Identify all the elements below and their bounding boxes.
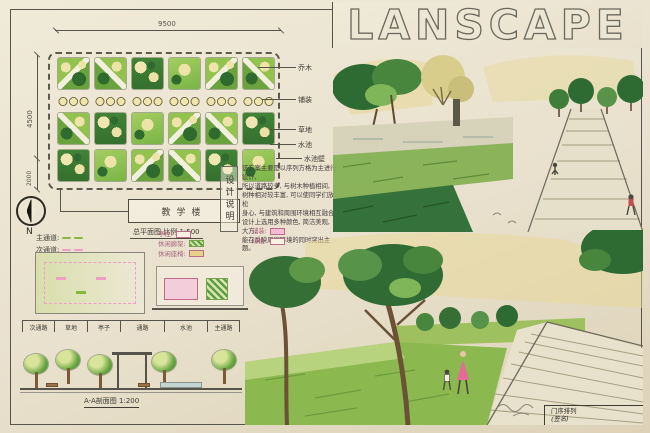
leader-line <box>258 67 296 68</box>
dimension-line-top <box>55 30 281 31</box>
planting-bed <box>206 58 237 89</box>
sculpture <box>453 99 460 126</box>
planting-bed <box>169 58 200 89</box>
legend-pergola: 休闲廊架: <box>158 240 204 250</box>
section-tree-icon <box>152 352 176 386</box>
planting-bed <box>58 150 89 181</box>
shrub-row <box>206 95 237 108</box>
section-tree-icon <box>88 355 112 389</box>
callout-pool-wall: 水池壁 <box>304 154 325 164</box>
section-ground-line <box>20 388 242 390</box>
pergola-swatch <box>189 240 204 247</box>
section-dimension-line: 次通路 草地 亭子 通路 水池 主通路 <box>22 320 240 332</box>
notes-line: 该方案主要是以序列方格为主进行设计, <box>242 165 338 183</box>
bird-marks <box>493 213 516 223</box>
shrub-row <box>58 95 89 108</box>
planting-bed <box>95 58 126 89</box>
north-arrow-icon <box>16 196 46 226</box>
presentation-board: LANSCAPE 9500 4500 2000 乔木 铺装 草地 水池 水池壁 … <box>0 0 650 433</box>
legend-pavilion-column: 亭柱: <box>158 230 204 240</box>
section-segment: 次通路 <box>22 321 54 332</box>
callout-tree: 乔木 <box>298 63 312 73</box>
main-path-swatch <box>62 237 71 240</box>
legend-structures: 亭柱: 休闲廊架: 休闲座椅: <box>158 230 204 260</box>
notes-line: 所以道路较多, 与树木种植相间, <box>242 183 338 192</box>
dim-left-label: 4500 <box>26 110 34 128</box>
north-needle <box>27 199 36 223</box>
section-bench <box>138 383 150 387</box>
planting-bed <box>243 58 274 89</box>
tree-icon <box>579 230 643 274</box>
callout-paving: 铺装 <box>298 95 312 105</box>
shrub-row <box>132 95 163 108</box>
section-caption: A-A剖面图 1:200 <box>84 396 139 408</box>
courtyard-detail-plan <box>35 252 145 314</box>
section-ground-line-2 <box>20 392 242 393</box>
shrub-row <box>95 95 126 108</box>
section-tree-icon <box>24 354 48 388</box>
section-segment: 草地 <box>54 321 87 332</box>
board-title: LANSCAPE <box>347 5 629 46</box>
secondary-path-swatch <box>74 249 83 252</box>
planting-bed <box>58 58 89 89</box>
building-leader <box>60 211 128 212</box>
leader-line <box>262 99 296 100</box>
dim-top-label: 9500 <box>158 20 176 28</box>
leader-line <box>270 129 296 130</box>
section-segment: 通路 <box>120 321 164 332</box>
design-notes-label: 设计说明 <box>220 166 238 232</box>
notes-line: 身心, 与建筑和周围环境相互融合, <box>242 210 338 219</box>
planting-bed <box>132 58 163 89</box>
shrub-row <box>243 95 274 108</box>
planting-bed <box>206 113 237 144</box>
shrub-row <box>169 95 200 108</box>
section-segment: 水池 <box>164 321 207 332</box>
section-tree-icon <box>56 350 80 384</box>
section-tree-icon <box>212 350 236 384</box>
planting-bed <box>58 113 89 144</box>
title-band: LANSCAPE <box>332 2 643 48</box>
section-segment: 亭子 <box>87 321 120 332</box>
stairs-path <box>528 109 643 232</box>
building-leader <box>60 188 61 211</box>
main-path-swatch <box>74 237 83 240</box>
title-block: 门序排列 (签名) <box>544 405 643 425</box>
green-mark <box>76 291 86 294</box>
leader-line <box>270 144 296 145</box>
perspective-sketch-bottom <box>245 230 643 425</box>
callout-lawn: 草地 <box>298 125 312 135</box>
planting-bed <box>169 150 200 181</box>
planting-bed <box>95 113 126 144</box>
planting-bed <box>95 150 126 181</box>
leader-line <box>276 158 302 159</box>
bench-swatch <box>189 250 204 257</box>
pavilion-pink-panel <box>164 278 198 300</box>
detail-dashed-outline <box>44 262 136 304</box>
dim-left-lower-label: 2000 <box>26 171 33 186</box>
callout-pool: 水池 <box>298 140 312 150</box>
secondary-path-swatch <box>62 249 71 252</box>
section-segment: 主通路 <box>207 321 240 332</box>
pink-mark <box>96 277 106 280</box>
perspective-sketch-top <box>333 47 643 232</box>
pavilion-elevation <box>152 258 248 310</box>
pavilion-green-trellis <box>206 278 228 300</box>
legend-main-path: 主通道: <box>36 233 83 245</box>
north-label: N <box>26 227 33 237</box>
signature: (签名) <box>551 415 569 424</box>
planting-bed <box>132 113 163 144</box>
section-bench <box>46 383 58 387</box>
notes-line: 树种相对较丰富, 可以使同学们放松 <box>242 192 338 210</box>
dimension-line-left <box>37 55 38 190</box>
column-swatch <box>176 231 191 238</box>
planting-bed <box>169 113 200 144</box>
planting-bed <box>132 150 163 181</box>
pink-mark <box>56 277 66 280</box>
